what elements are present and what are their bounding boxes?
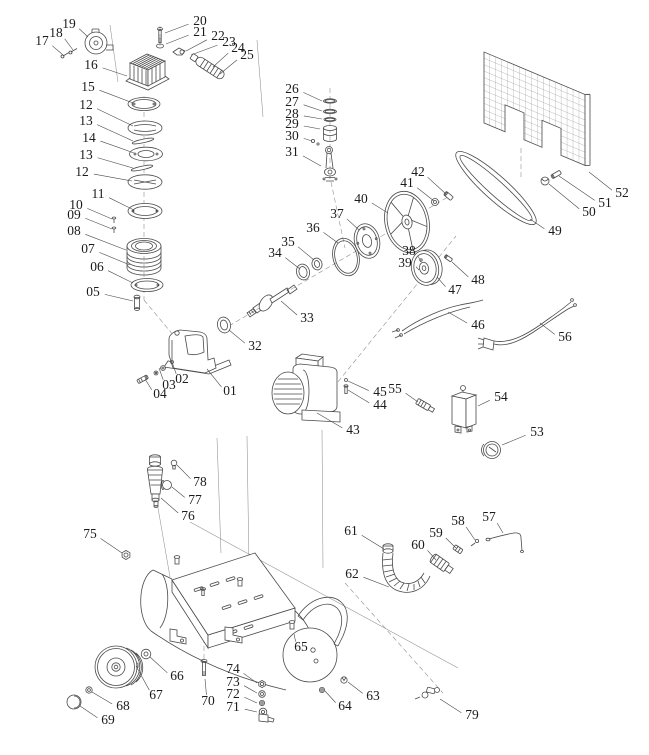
leader-line-60 <box>427 550 436 560</box>
part-number-34: 34 <box>268 245 282 260</box>
drain-washer-small <box>259 700 264 705</box>
platform-bolt <box>237 578 243 586</box>
part-number-71: 71 <box>226 699 240 714</box>
part-number-64: 64 <box>338 698 352 713</box>
part-number-66: 66 <box>170 668 184 683</box>
part-number-63: 63 <box>366 688 380 703</box>
hub-cap <box>67 695 81 709</box>
part-number-77: 77 <box>188 492 202 507</box>
tube-clip <box>341 677 347 683</box>
washer <box>154 371 158 375</box>
part-number-32: 32 <box>248 338 262 353</box>
elbow-connector <box>415 687 440 699</box>
part-number-12: 12 <box>79 97 93 112</box>
part-number-08: 08 <box>67 223 81 238</box>
leader-line-59 <box>446 538 456 548</box>
part-number-40: 40 <box>354 191 368 206</box>
exploded-parts-diagram: 1918171615121314131211100908070605202122… <box>0 0 649 755</box>
platform-bolt <box>174 556 180 564</box>
piston-rings <box>324 99 337 122</box>
leader-line-27 <box>304 105 322 111</box>
part-number-57: 57 <box>482 509 496 524</box>
part-number-30: 30 <box>285 128 299 143</box>
leader-line-34 <box>285 258 300 269</box>
part-number-17: 17 <box>35 33 49 48</box>
part-number-56: 56 <box>558 329 572 344</box>
leader-line-71 <box>245 709 257 712</box>
leader-line-16 <box>103 68 127 76</box>
leader-line-30 <box>304 138 312 141</box>
leader-line-14 <box>100 141 134 153</box>
leader-line-10 <box>87 208 112 219</box>
leader-line-13 <box>97 125 133 141</box>
wheel-washer <box>141 649 151 659</box>
leader-line-57 <box>497 523 503 533</box>
leader-line-23 <box>191 45 218 55</box>
valve-plate <box>128 121 162 135</box>
regulator-bolt <box>171 460 177 469</box>
part-number-69: 69 <box>101 712 115 727</box>
platform-bolt <box>289 621 295 629</box>
filter-screws <box>61 49 77 59</box>
pulley-bolt <box>444 254 453 262</box>
leader-line-19 <box>79 29 88 37</box>
leader-line-29 <box>304 126 320 129</box>
switch-fitting <box>416 398 435 413</box>
part-number-62: 62 <box>345 566 359 581</box>
leader-line-32 <box>229 330 245 343</box>
leader-line-15 <box>99 90 133 103</box>
elbow-fitting <box>173 48 185 55</box>
part-number-25: 25 <box>240 47 254 62</box>
part-number-13: 13 <box>79 147 93 162</box>
reed-valve <box>131 164 153 172</box>
ball-bearing <box>295 263 311 282</box>
leader-line-20 <box>165 24 189 33</box>
part-number-33: 33 <box>300 310 314 325</box>
leader-line-48 <box>452 262 468 277</box>
leader-line-52 <box>589 172 612 190</box>
leader-line-69 <box>80 706 97 718</box>
leader-line-05 <box>105 294 133 301</box>
leader-line-28 <box>304 116 322 119</box>
outlet-tube <box>189 52 226 80</box>
leader-line-75 <box>100 538 122 553</box>
pressure-switch <box>452 386 476 434</box>
part-number-07: 07 <box>81 241 95 256</box>
leader-line-44 <box>348 390 369 403</box>
leader-line-42 <box>428 177 446 194</box>
part-number-46: 46 <box>471 317 485 332</box>
leader-line-76 <box>161 498 178 513</box>
drain-cock <box>259 708 274 722</box>
air-filter <box>85 29 113 54</box>
leader-line-07 <box>99 252 130 265</box>
leader-line-21 <box>166 35 189 44</box>
head-gasket <box>128 98 160 111</box>
pin-clip <box>317 143 319 145</box>
wheel <box>95 646 143 688</box>
belt-guard-grille <box>484 50 590 185</box>
part-number-13: 13 <box>79 113 93 128</box>
part-number-61: 61 <box>344 523 358 538</box>
head-screws <box>112 217 116 233</box>
part-number-04: 04 <box>153 386 167 401</box>
reed-valve <box>132 137 154 145</box>
part-number-12: 12 <box>75 164 89 179</box>
part-number-59: 59 <box>429 525 443 540</box>
stud-bolt <box>134 295 140 310</box>
part-number-16: 16 <box>84 57 98 72</box>
leader-line-63 <box>348 682 363 693</box>
leader-line-45 <box>348 381 369 391</box>
leader-line-56 <box>540 323 555 334</box>
leader-line-78 <box>177 465 191 479</box>
leader-line-54 <box>478 400 490 406</box>
leader-line-18 <box>65 39 73 50</box>
part-number-31: 31 <box>285 144 299 159</box>
part-number-39: 39 <box>398 255 412 270</box>
washer <box>161 366 166 371</box>
leader-line-46 <box>448 312 467 323</box>
part-number-14: 14 <box>82 130 96 145</box>
leader-line-12 <box>94 174 132 181</box>
leader-line-12 <box>97 109 133 126</box>
motor-bolt <box>344 385 348 394</box>
part-number-37: 37 <box>330 206 344 221</box>
drain-bolt <box>201 659 207 675</box>
leader-line-77 <box>172 487 185 497</box>
part-number-60: 60 <box>411 537 425 552</box>
part-number-78: 78 <box>193 474 207 489</box>
part-number-47: 47 <box>448 282 462 297</box>
part-number-43: 43 <box>346 422 360 437</box>
leader-line-68 <box>92 692 112 704</box>
oil-seal <box>216 316 232 335</box>
leader-line-31 <box>303 156 321 166</box>
part-number-44: 44 <box>373 397 387 412</box>
leader-line-47 <box>437 277 446 287</box>
part-number-50: 50 <box>582 204 596 219</box>
filter-regulator <box>148 455 172 508</box>
plug <box>319 687 324 692</box>
tank-end-cap <box>283 628 337 682</box>
part-number-68: 68 <box>116 698 130 713</box>
leader-line-36 <box>323 232 338 243</box>
leader-line-04 <box>145 379 152 390</box>
leader-line-49 <box>530 219 544 229</box>
part-number-01: 01 <box>223 383 237 398</box>
part-number-65: 65 <box>294 639 308 654</box>
leader-line-58 <box>466 527 475 540</box>
part-number-41: 41 <box>400 175 414 190</box>
leader-line-79 <box>440 699 461 713</box>
part-number-67: 67 <box>149 687 163 702</box>
leader-line-26 <box>303 92 322 101</box>
part-number-79: 79 <box>465 707 479 722</box>
axle-washer <box>86 687 92 693</box>
part-number-54: 54 <box>494 389 508 404</box>
part-number-52: 52 <box>615 185 629 200</box>
leader-line-11 <box>109 198 134 210</box>
leader-line-55 <box>406 393 418 402</box>
fan-cover <box>272 372 304 414</box>
part-number-21: 21 <box>193 24 207 39</box>
connecting-rod <box>323 147 337 182</box>
part-number-51: 51 <box>598 195 612 210</box>
cylinder-head <box>126 54 169 90</box>
electric-motor <box>270 354 340 422</box>
cylinder-gasket <box>128 204 162 219</box>
unloader-tube <box>486 533 524 553</box>
drain-washer <box>259 691 266 698</box>
crankshaft <box>247 285 297 317</box>
part-number-05: 05 <box>86 284 100 299</box>
part-number-06: 06 <box>90 259 104 274</box>
part-number-75: 75 <box>83 526 97 541</box>
leader-line-53 <box>502 435 526 445</box>
leader-line-64 <box>325 691 336 703</box>
part-number-18: 18 <box>49 25 63 40</box>
base-gasket <box>131 279 163 292</box>
leader-line-33 <box>281 301 297 315</box>
leader-line-50 <box>549 184 579 209</box>
leader-line-72 <box>244 697 257 703</box>
part-number-09: 09 <box>67 207 81 222</box>
tank-platform <box>172 553 295 648</box>
leader-line-17 <box>52 46 63 55</box>
part-number-58: 58 <box>451 513 465 528</box>
part-number-36: 36 <box>306 220 320 235</box>
part-number-48: 48 <box>471 272 485 287</box>
motor-bolt <box>345 379 348 382</box>
part-number-70: 70 <box>201 693 215 708</box>
leader-line-13 <box>98 158 133 168</box>
leader-line-24 <box>213 53 228 67</box>
part-number-35: 35 <box>281 234 295 249</box>
valve-plate <box>128 175 162 189</box>
leader-line-06 <box>108 271 133 283</box>
part-number-11: 11 <box>92 186 105 201</box>
part-number-55: 55 <box>388 381 402 396</box>
part-number-15: 15 <box>81 79 95 94</box>
leader-line-09 <box>85 218 112 229</box>
diagram-canvas: 1918171615121314131211100908070605202122… <box>0 0 649 755</box>
leader-line-37 <box>347 219 359 230</box>
leader-line-35 <box>298 247 314 260</box>
mount-nut <box>122 551 130 560</box>
leader-line-66 <box>150 657 167 673</box>
part-number-53: 53 <box>530 424 544 439</box>
part-number-49: 49 <box>548 223 562 238</box>
leader-line-25 <box>220 60 237 74</box>
leader-line-73 <box>244 686 257 693</box>
motor-cable <box>392 300 483 338</box>
part-number-19: 19 <box>62 16 76 31</box>
drain-nut <box>259 681 265 688</box>
pressure-gauge <box>482 442 501 459</box>
part-number-76: 76 <box>181 508 195 523</box>
grille-bolt <box>551 170 562 179</box>
leader-line-22 <box>186 40 207 51</box>
regulator-knob <box>163 481 172 490</box>
leader-line-61 <box>362 535 384 549</box>
part-number-02: 02 <box>175 371 189 386</box>
valve-plate <box>130 147 163 161</box>
tube-nut <box>471 539 479 546</box>
v-belt <box>449 144 544 233</box>
tank-leg <box>170 629 186 644</box>
